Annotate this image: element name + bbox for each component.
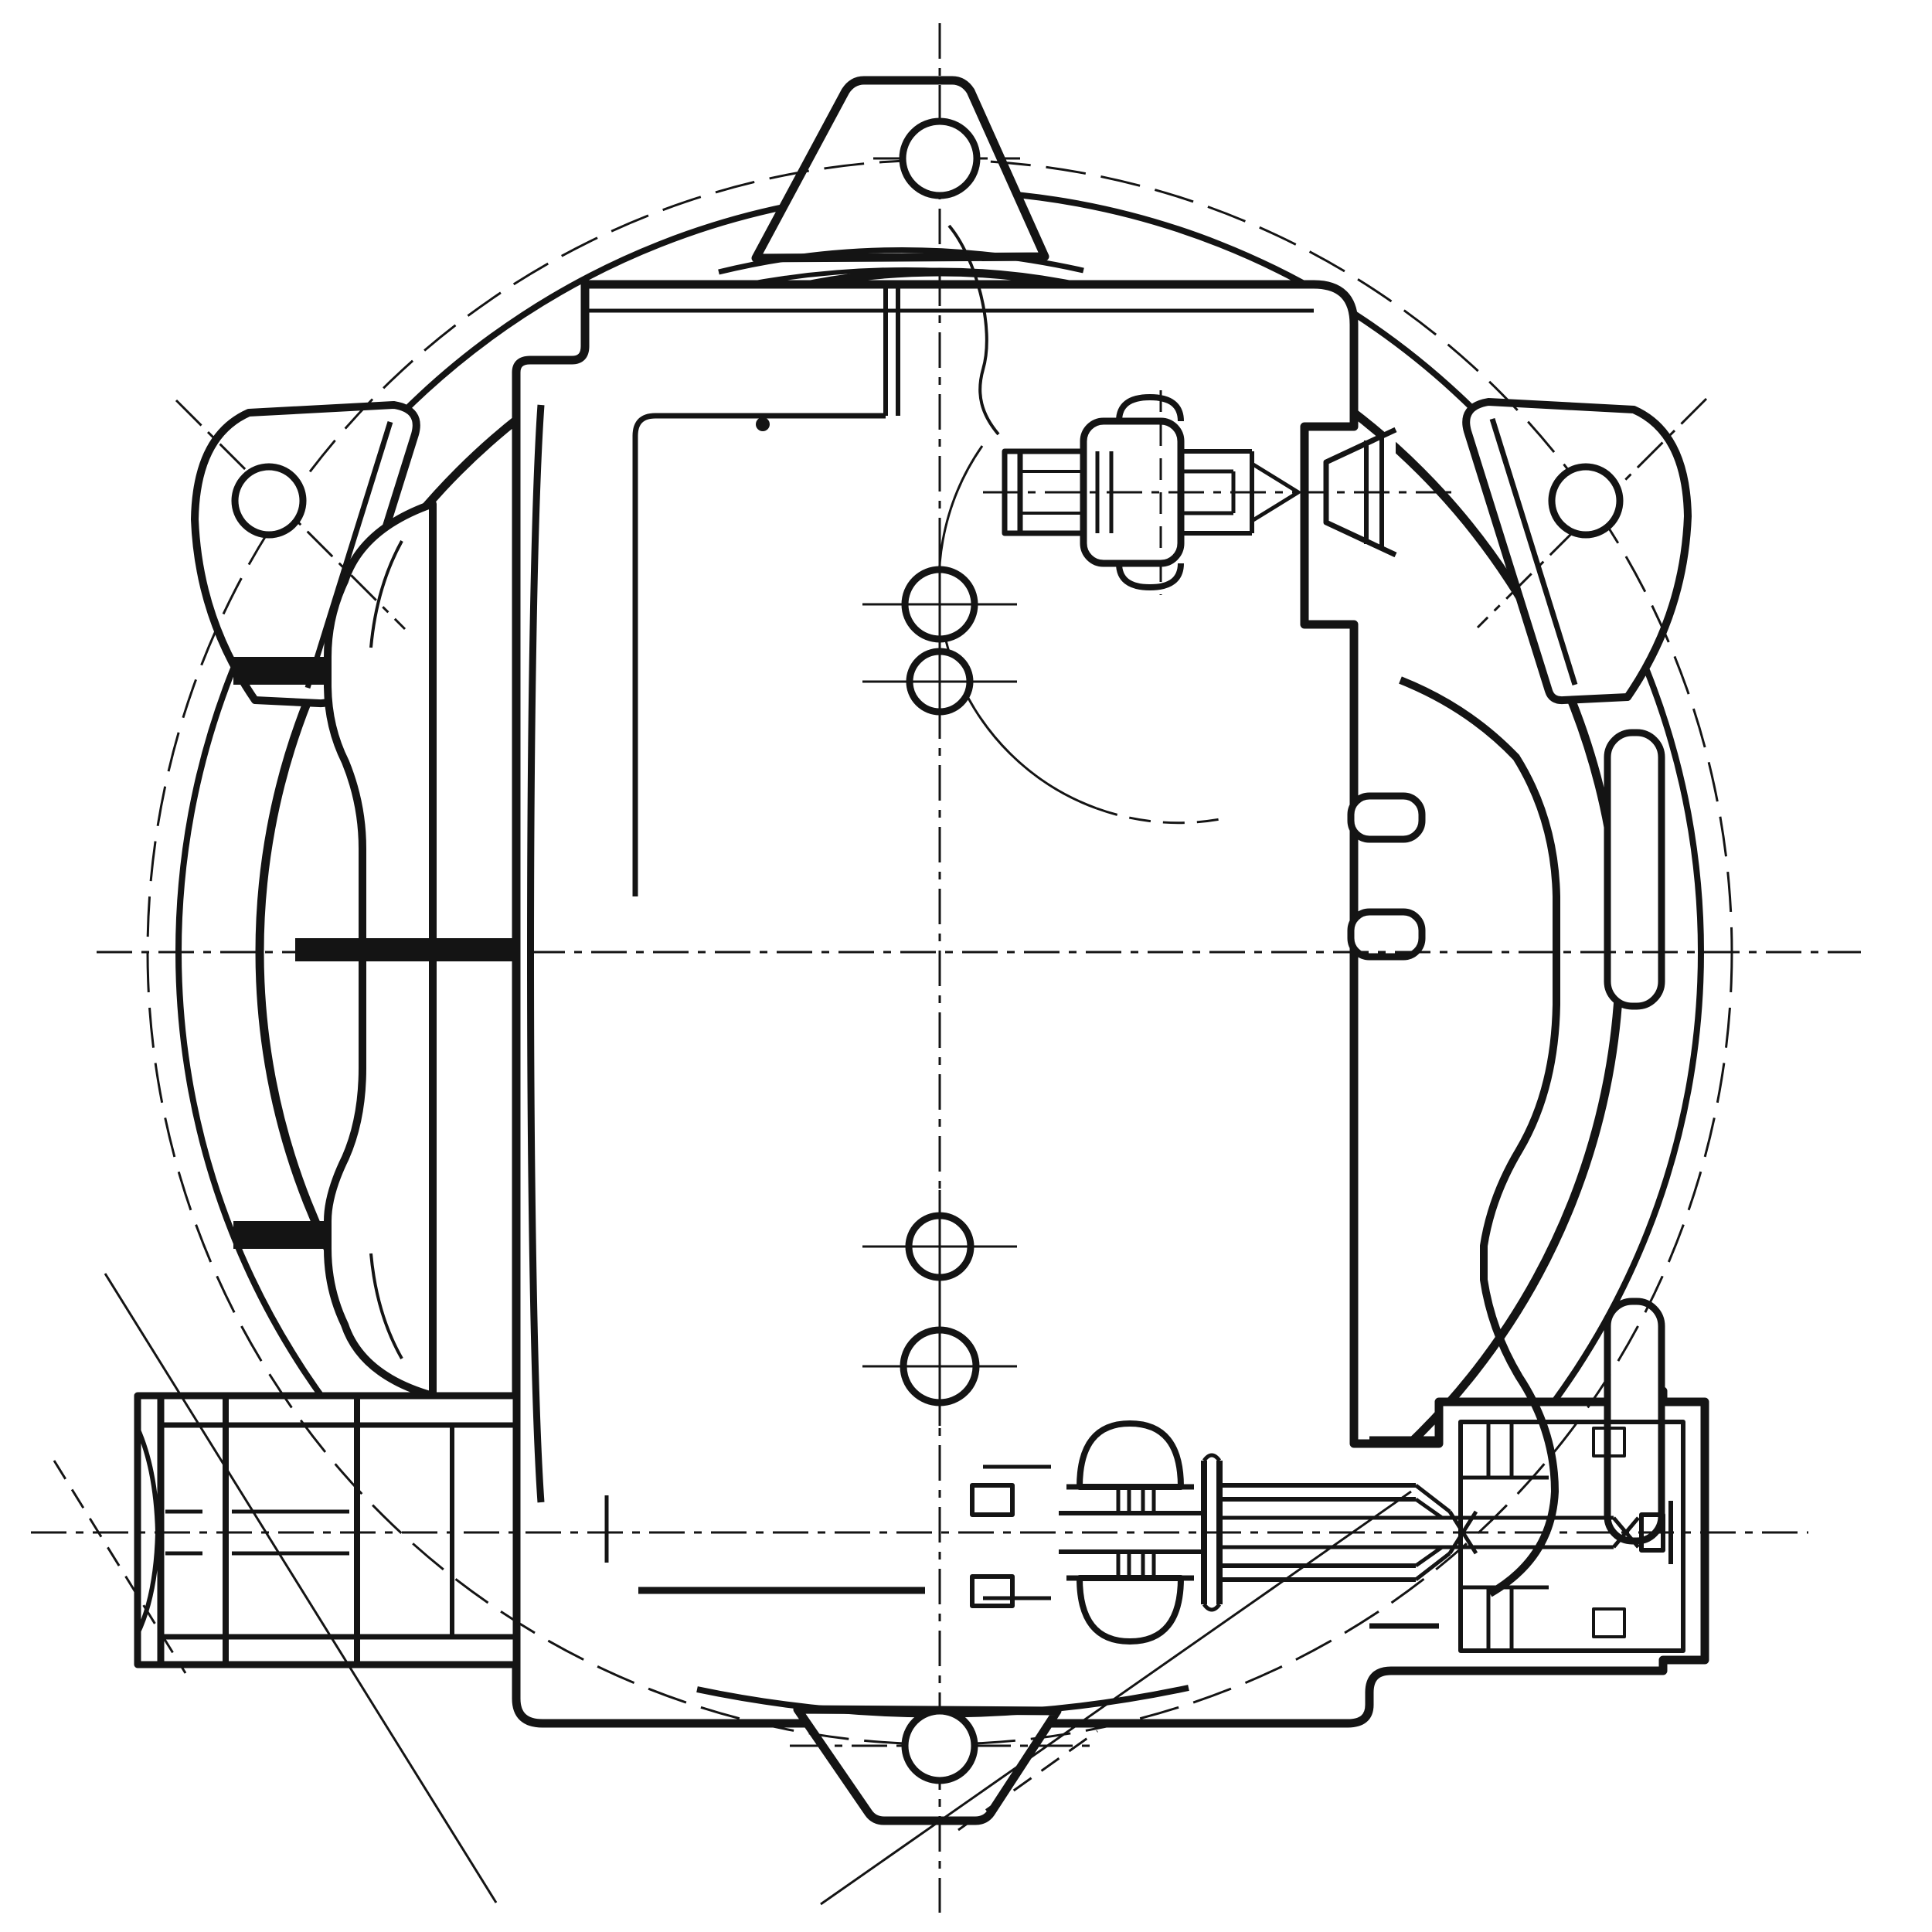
top-lug-hole — [903, 121, 977, 196]
drawing-page: circular housing outlines (outer flange,… — [0, 0, 1932, 1932]
bottom-left-connector: bottom-left hex cable gland / connector … — [138, 1396, 516, 1665]
upper-left-fin-hole — [235, 467, 303, 535]
upper-right-fin: upper-right corner mounting fin with bol… — [1466, 402, 1688, 700]
engineering-drawing: circular housing outlines (outer flange,… — [0, 0, 1932, 1932]
upper-right-fin-hole — [1552, 467, 1620, 535]
top-mounting-lug: top mounting lug with bolt hole — [697, 80, 1105, 295]
bottom-lug-hole — [905, 1711, 975, 1781]
